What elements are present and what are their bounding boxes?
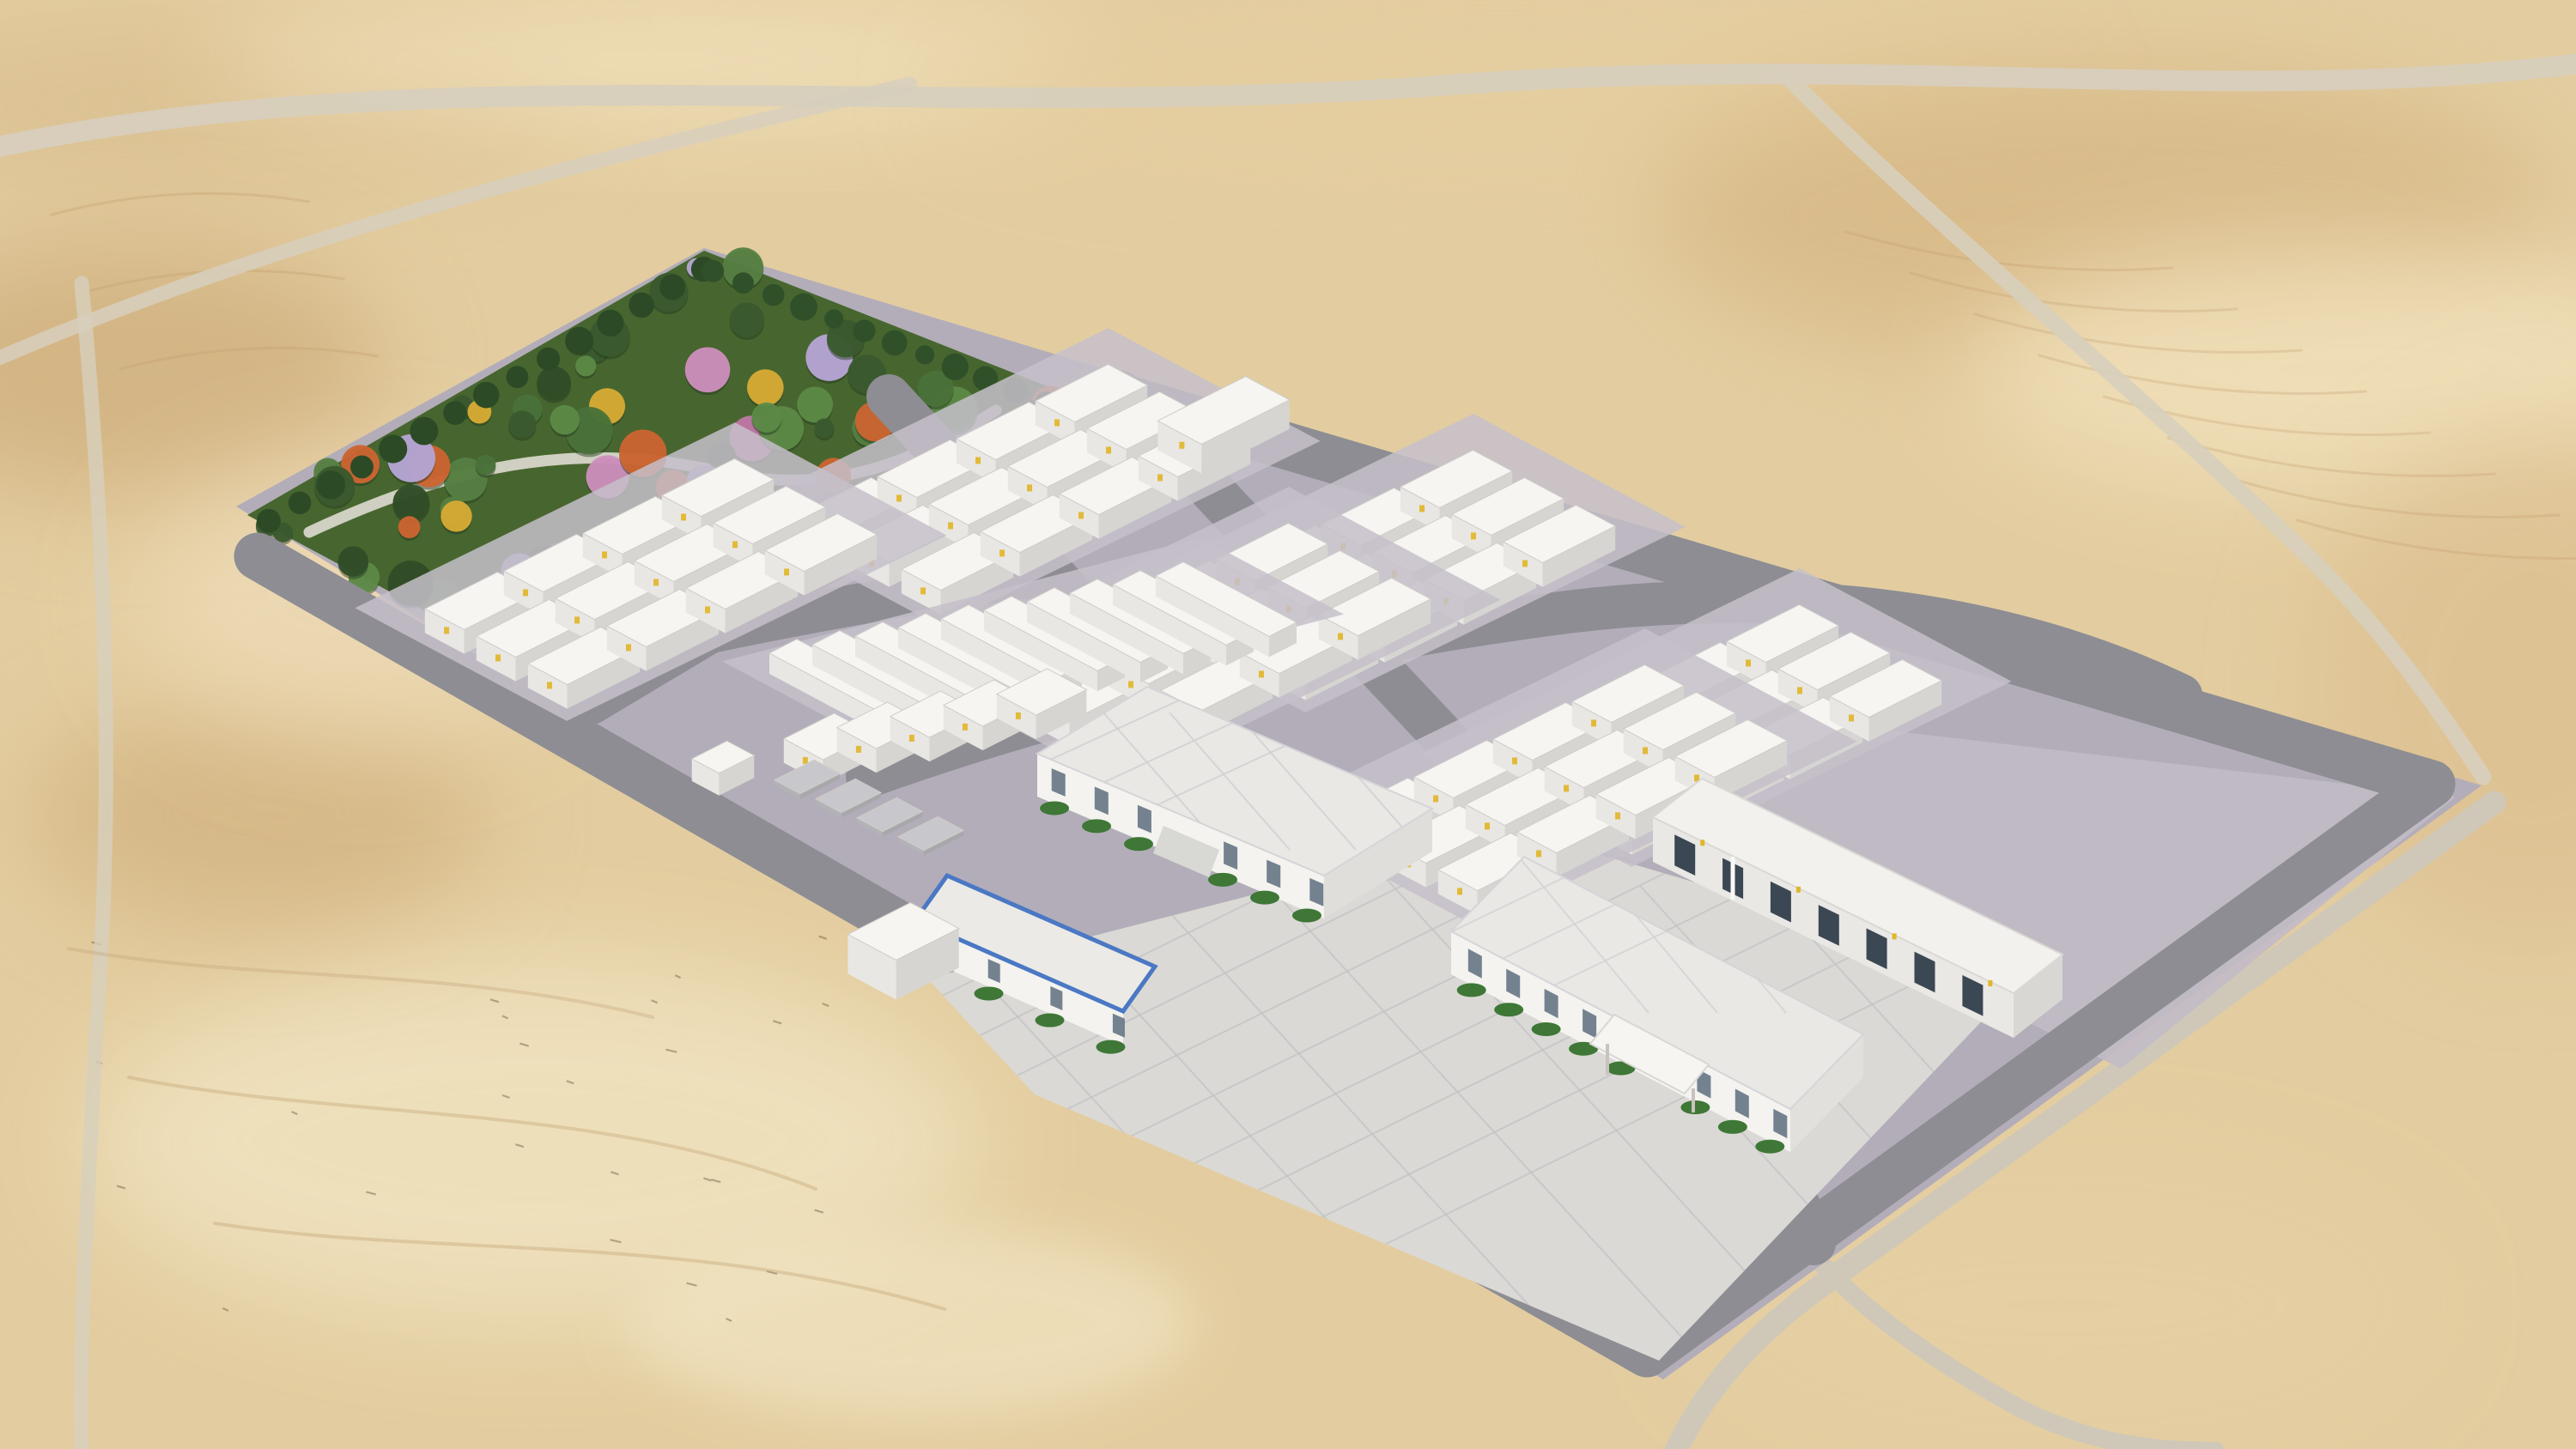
warning-sign	[681, 513, 686, 520]
warning-sign	[784, 568, 789, 575]
park-tree	[575, 355, 596, 376]
park-tree	[476, 455, 496, 476]
warning-sign	[1746, 659, 1751, 666]
park-tree	[685, 348, 731, 393]
park-tree	[338, 546, 368, 576]
warning-sign	[1157, 474, 1163, 481]
park-tree	[508, 410, 536, 438]
conifer-row-tree	[824, 309, 843, 328]
warning-sign	[626, 644, 631, 651]
hedge	[1532, 1022, 1561, 1036]
hedge	[1718, 1120, 1747, 1134]
warning-sign	[1564, 785, 1569, 791]
conifer-row-tree	[732, 272, 754, 294]
warning-sign	[1471, 532, 1476, 539]
warning-sign	[1700, 840, 1704, 846]
conifer-row-tree	[790, 294, 817, 321]
warning-sign	[1591, 719, 1596, 726]
warning-sign	[1338, 633, 1343, 640]
park-tree	[392, 484, 429, 521]
warning-sign	[1643, 747, 1648, 754]
hedge	[1457, 983, 1486, 997]
hedge	[1494, 1003, 1523, 1016]
warning-sign	[1179, 442, 1184, 449]
conifer-row-tree	[853, 319, 875, 342]
warning-sign	[948, 522, 953, 529]
hedge	[1040, 802, 1069, 815]
warning-sign	[1893, 933, 1897, 939]
conifer-row-tree	[882, 330, 908, 356]
aerial-site-render	[0, 0, 2576, 1449]
hedge	[1250, 891, 1279, 905]
conifer-row-tree	[506, 366, 528, 388]
warning-sign	[705, 606, 710, 613]
hedge	[1082, 819, 1111, 833]
warning-sign	[547, 682, 552, 688]
hedge	[1124, 837, 1153, 851]
park-tree	[537, 367, 571, 401]
park-tree	[751, 403, 781, 433]
warning-sign	[1615, 812, 1620, 819]
park-tree	[440, 500, 471, 531]
warning-sign	[1259, 670, 1264, 677]
conifer-row-tree	[915, 345, 934, 364]
warning-sign	[803, 757, 808, 764]
dune	[26, 704, 489, 927]
hedge	[1680, 1100, 1710, 1114]
park-tree	[814, 419, 834, 439]
warning-sign	[999, 549, 1005, 556]
conifer-row-tree	[410, 417, 438, 446]
warning-sign	[1512, 757, 1517, 764]
park-tree	[747, 369, 784, 406]
warning-sign	[1419, 505, 1425, 512]
warning-sign	[495, 654, 501, 661]
warning-sign	[1485, 822, 1490, 829]
warning-sign	[1128, 681, 1133, 688]
warning-sign	[920, 587, 926, 594]
conifer-row-tree	[629, 293, 654, 318]
conifer-row-tree	[659, 274, 685, 300]
conifer-row-tree	[473, 382, 500, 409]
scene-canvas	[0, 0, 2576, 1449]
conifer-row-tree	[565, 327, 593, 355]
hedge	[1096, 1040, 1125, 1054]
warning-sign	[523, 589, 528, 596]
conifer-row-tree	[443, 401, 467, 425]
warning-sign	[1054, 419, 1060, 426]
conifer-row-tree	[317, 470, 345, 499]
warning-sign	[653, 579, 659, 585]
hedge	[1292, 908, 1321, 922]
warning-sign	[732, 541, 738, 548]
warning-sign	[1796, 887, 1801, 893]
hedge	[1035, 1014, 1064, 1028]
conifer-row-tree	[350, 455, 374, 478]
warning-sign	[444, 627, 449, 634]
conifer-row-tree	[289, 492, 312, 515]
conifer-row-tree	[537, 348, 560, 371]
conifer-row-tree	[702, 260, 724, 282]
warning-sign	[1849, 714, 1854, 721]
warning-sign	[602, 551, 607, 558]
warning-sign	[1797, 687, 1802, 694]
warning-sign	[856, 746, 861, 753]
warning-sign	[963, 724, 968, 731]
park-tree	[797, 386, 833, 422]
hedge	[975, 986, 1004, 1000]
conifer-row-tree	[597, 310, 623, 336]
warning-sign	[909, 735, 914, 742]
conifer-row-tree	[942, 354, 969, 380]
hedge	[1208, 873, 1237, 887]
park-tree	[550, 405, 580, 434]
conifer-row-tree	[379, 434, 407, 463]
warning-sign	[574, 616, 580, 623]
warning-sign	[1027, 484, 1032, 491]
warning-sign	[1016, 712, 1021, 719]
warning-sign	[1536, 850, 1541, 857]
warning-sign	[1078, 512, 1084, 518]
warning-sign	[1522, 560, 1528, 567]
warning-sign	[1433, 795, 1438, 802]
warning-sign	[1988, 980, 1992, 986]
conifer-row-tree	[257, 509, 281, 533]
warning-sign	[1106, 446, 1111, 453]
warning-sign	[896, 494, 902, 501]
dune	[627, 1228, 1194, 1416]
hedge	[1755, 1140, 1784, 1154]
warning-sign	[1457, 888, 1462, 894]
park-tree	[730, 302, 765, 337]
conifer-row-tree	[762, 284, 785, 306]
park-tree	[398, 516, 421, 538]
warning-sign	[975, 457, 981, 464]
